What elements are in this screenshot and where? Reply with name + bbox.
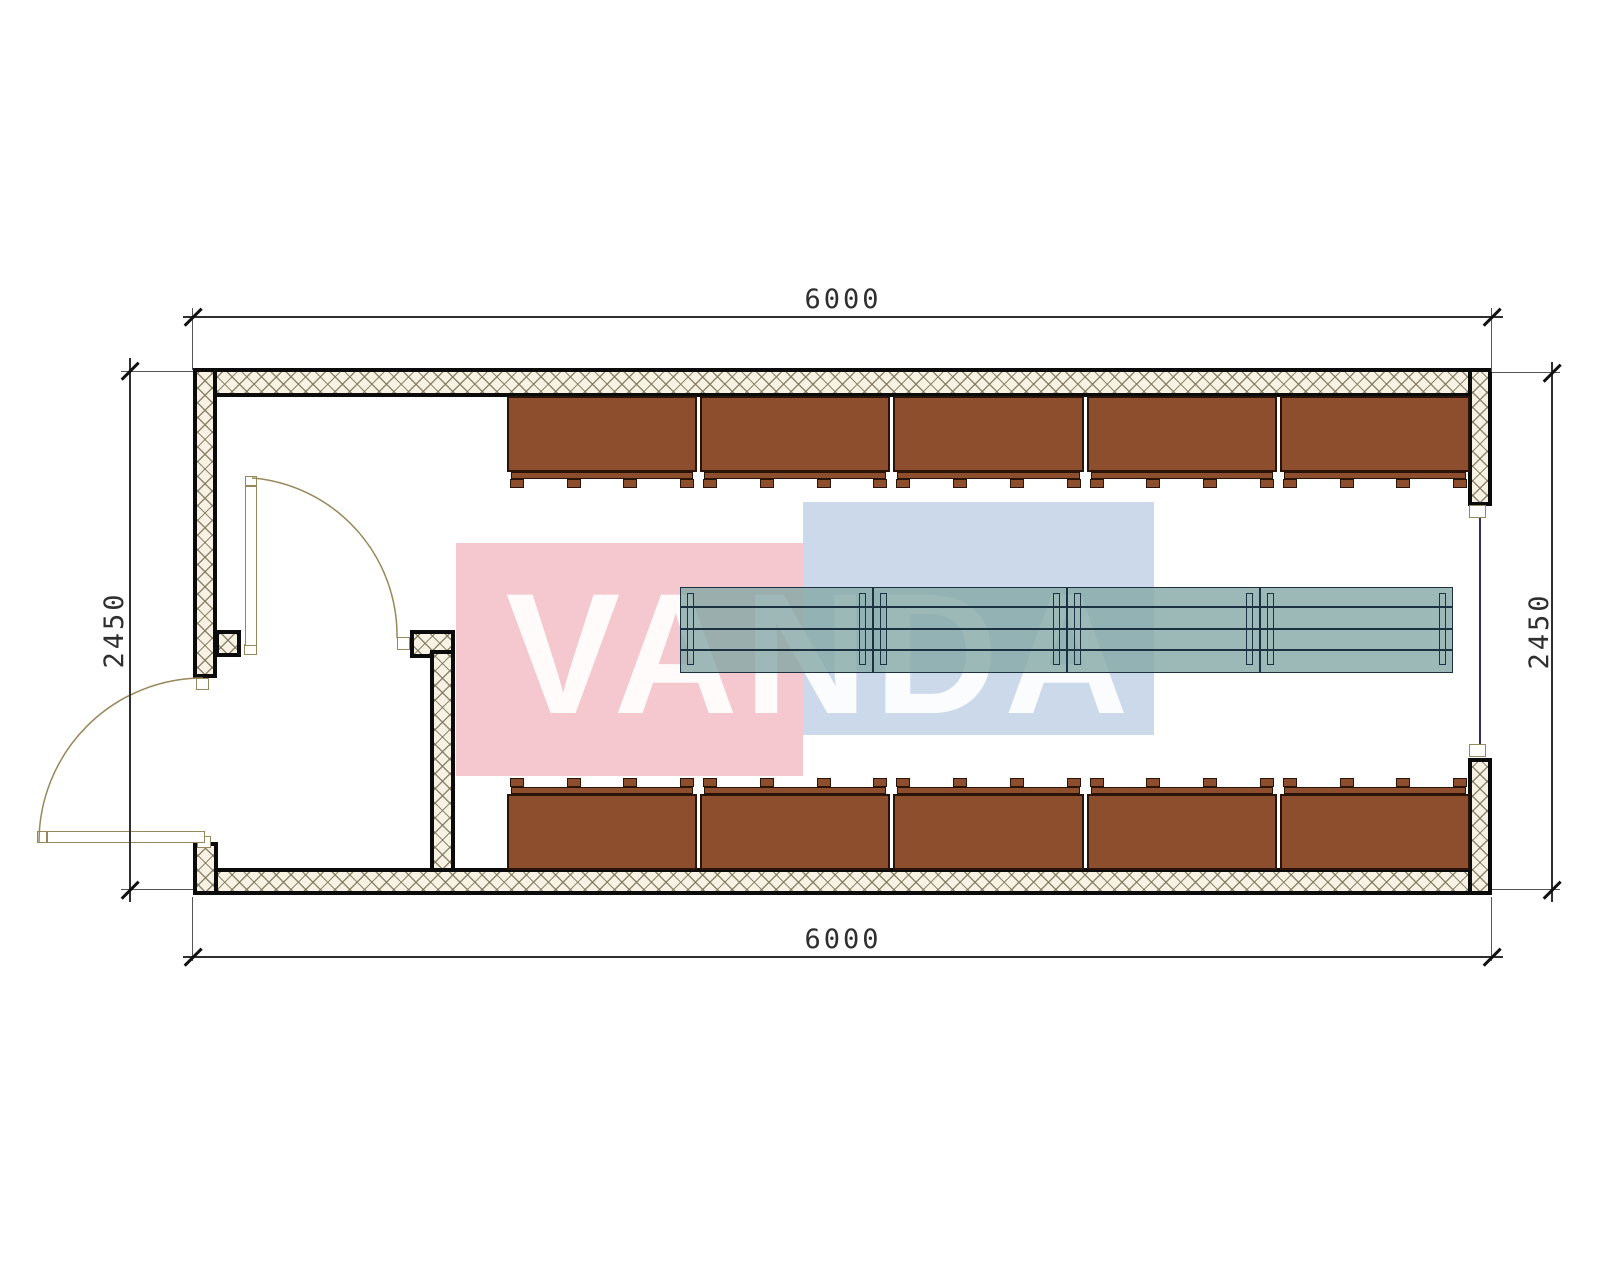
dimension-label-right: 2450 <box>1526 558 1554 704</box>
dimension-line-bottom <box>183 956 1503 958</box>
interior-door-swing-arc <box>252 478 397 638</box>
table-plank-line <box>681 649 1452 651</box>
table-segments <box>680 587 1453 673</box>
table-segment <box>1067 587 1260 673</box>
extension-line <box>1491 897 1492 961</box>
extension-line <box>121 371 193 372</box>
table-segment <box>680 587 873 673</box>
dimension-label-top: 6000 <box>770 286 916 314</box>
table-plank-line <box>681 606 1452 608</box>
floor-plan: VANDA <box>0 0 1600 1280</box>
table-plank-line <box>681 628 1452 630</box>
dimension-line-top <box>183 316 1503 318</box>
extension-line <box>192 897 193 961</box>
table-segment <box>1260 587 1453 673</box>
central-table <box>680 587 1453 673</box>
dimension-label-left: 2450 <box>101 557 129 703</box>
table-segment <box>873 587 1066 673</box>
dimension-label-bottom: 6000 <box>770 926 916 954</box>
